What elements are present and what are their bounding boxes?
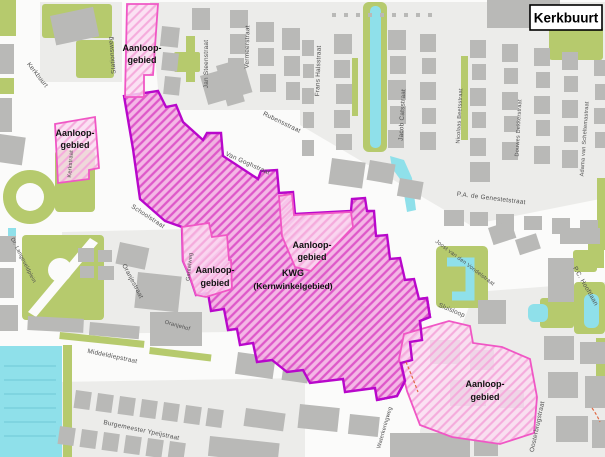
building	[303, 64, 314, 78]
building	[534, 146, 550, 164]
building	[420, 34, 436, 52]
green-area	[186, 36, 195, 82]
building	[302, 140, 314, 156]
building	[334, 110, 350, 128]
building	[57, 426, 75, 446]
street-label-jan-steenstraat: Jan Steenstraat	[203, 40, 210, 89]
building	[73, 390, 91, 410]
oranjehof-building	[150, 312, 202, 346]
building	[562, 150, 578, 168]
building	[595, 132, 605, 148]
building	[282, 28, 300, 50]
kerkbuurt-zoning-map: Aanloop- gebied Aanloop- gebied Aanloop-…	[0, 0, 605, 457]
zone-label-aanloop-east-line1: Aanloop-	[466, 379, 505, 389]
building	[258, 48, 274, 66]
dot-marker	[416, 13, 420, 17]
building	[0, 98, 12, 132]
title-box: Kerkbuurt	[530, 5, 602, 30]
zone-label-aanloop-center-line1: Aanloop-	[293, 240, 332, 250]
building	[0, 268, 14, 298]
building	[472, 64, 486, 80]
building	[260, 74, 276, 92]
building	[548, 372, 578, 398]
building	[534, 48, 550, 66]
building	[595, 84, 605, 100]
zone-label-aanloop-kerkstraat-line2: gebied	[60, 140, 89, 150]
zone-label-aanloop-kerkstraat-line1: Aanloop-	[56, 128, 95, 138]
zone-label-aanloop-center-line2: gebied	[297, 252, 326, 262]
building	[592, 420, 605, 448]
building	[420, 132, 436, 150]
building	[348, 414, 380, 437]
building	[478, 300, 506, 324]
zone-label-aanloop-gantelweg-line2: gebied	[200, 278, 229, 288]
dot-marker	[368, 13, 372, 17]
building	[562, 52, 578, 70]
building	[101, 432, 119, 452]
building	[95, 393, 113, 413]
harbor	[0, 346, 62, 457]
building	[334, 34, 352, 54]
dot-marker	[344, 13, 348, 17]
building	[328, 158, 365, 188]
building	[502, 44, 518, 62]
building	[472, 112, 486, 128]
building	[0, 134, 26, 165]
building	[205, 408, 223, 428]
building	[80, 266, 94, 278]
building	[420, 82, 436, 100]
green-area	[0, 0, 16, 36]
building	[422, 108, 436, 124]
building	[388, 30, 406, 50]
building	[336, 84, 352, 104]
dot-marker	[392, 13, 396, 17]
building	[78, 248, 94, 262]
street-label-vermeerstraat: Vermeerstraat	[244, 25, 252, 69]
building	[0, 305, 18, 331]
building	[470, 212, 488, 226]
building	[79, 429, 97, 449]
building	[524, 216, 542, 230]
dot-marker	[332, 13, 336, 17]
zone-label-aanloop-station-line1: Aanloop-	[123, 43, 162, 53]
building	[286, 82, 300, 100]
building	[422, 58, 436, 74]
building	[161, 52, 179, 72]
building	[534, 96, 550, 114]
building	[228, 58, 244, 76]
building	[98, 250, 112, 262]
building	[594, 108, 605, 124]
building	[297, 404, 339, 432]
building	[27, 316, 84, 333]
building	[123, 435, 141, 455]
building	[502, 92, 518, 110]
building	[470, 138, 486, 156]
building	[98, 266, 114, 280]
building	[564, 76, 578, 92]
pond	[528, 304, 548, 322]
building	[536, 72, 550, 88]
green-area	[0, 78, 14, 94]
building	[139, 399, 157, 419]
dot-marker	[404, 13, 408, 17]
building	[303, 112, 314, 128]
building	[585, 376, 605, 408]
building	[0, 44, 14, 74]
building	[161, 402, 179, 422]
dot-marker	[428, 13, 432, 17]
building	[183, 405, 201, 425]
building	[168, 441, 186, 457]
roundabout-center	[16, 183, 44, 211]
map-title: Kerkbuurt	[534, 11, 599, 26]
building	[536, 120, 550, 136]
building	[504, 68, 518, 84]
building	[444, 210, 464, 226]
building	[117, 396, 135, 416]
building	[145, 438, 163, 457]
building	[470, 162, 490, 182]
building	[470, 88, 486, 106]
building	[580, 342, 605, 364]
building	[302, 88, 314, 104]
building	[470, 40, 486, 58]
zone-label-aanloop-station-line2: gebied	[127, 55, 156, 65]
building	[163, 76, 181, 96]
map-canvas: Aanloop- gebied Aanloop- gebied Aanloop-…	[0, 0, 605, 457]
building	[256, 22, 274, 42]
building	[284, 56, 300, 76]
building	[390, 56, 406, 74]
building	[562, 100, 578, 118]
building	[192, 8, 210, 30]
green-area	[352, 58, 358, 116]
canal	[370, 6, 381, 148]
building	[556, 416, 588, 442]
zone-label-kwg-line2: (Kernwinkelgebied)	[253, 281, 332, 291]
zone-label-aanloop-gantelweg-line1: Aanloop-	[196, 265, 235, 275]
building	[560, 228, 600, 244]
zone-label-kwg-line1: KWG	[282, 268, 304, 278]
zone-label-aanloop-east-line2: gebied	[470, 392, 499, 402]
building	[594, 60, 605, 76]
building	[302, 40, 314, 56]
dot-marker	[380, 13, 384, 17]
building	[160, 26, 180, 48]
building	[334, 60, 350, 78]
building	[564, 126, 578, 142]
building-tall	[548, 258, 574, 302]
dot-marker	[356, 13, 360, 17]
building	[544, 336, 574, 360]
building	[336, 134, 352, 150]
